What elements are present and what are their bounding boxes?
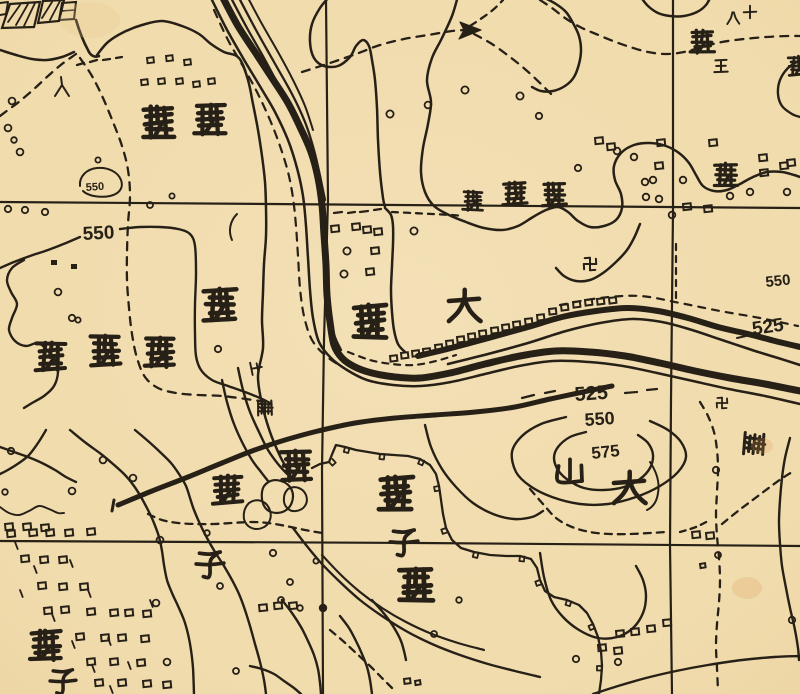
svg-text:550: 550: [85, 181, 104, 194]
svg-text:575: 575: [590, 441, 620, 463]
svg-text:525: 525: [751, 315, 786, 340]
svg-text:550: 550: [584, 408, 615, 430]
svg-text:525: 525: [574, 382, 609, 406]
svg-text:550: 550: [765, 271, 792, 291]
svg-text:550: 550: [82, 222, 115, 245]
